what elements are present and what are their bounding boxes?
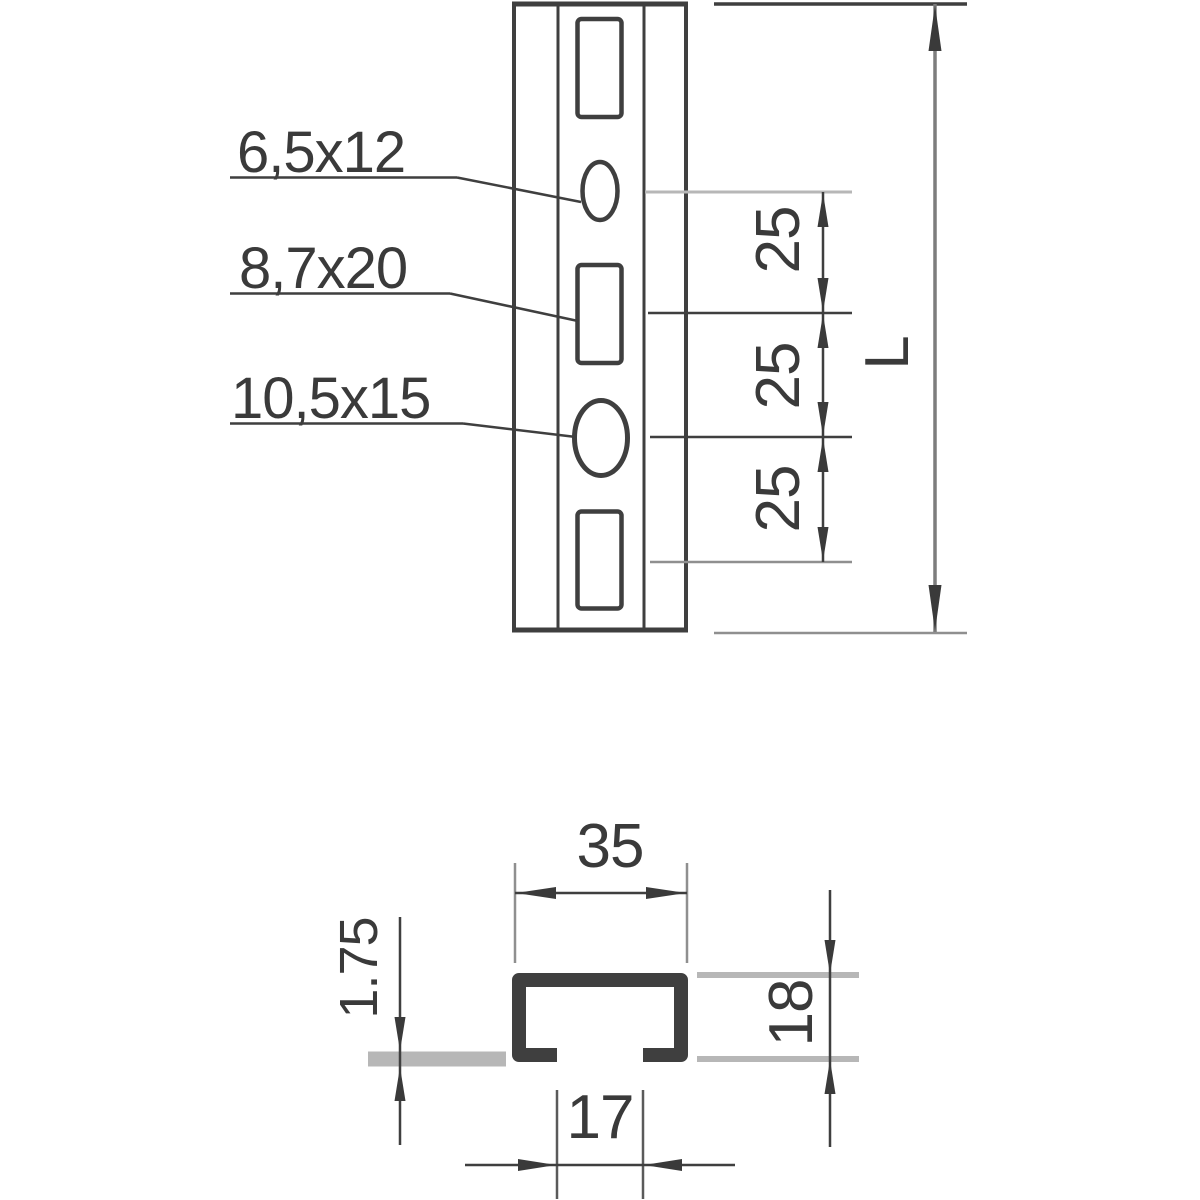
label-oblong-hole: 6,5x12 bbox=[237, 120, 405, 185]
pitch-dimension: 25 25 25 bbox=[744, 192, 829, 562]
arrow-down-icon bbox=[818, 527, 829, 561]
dim-height: 18 bbox=[757, 980, 826, 1047]
arrow-up-icon bbox=[929, 5, 942, 51]
arrow-up-icon bbox=[818, 438, 829, 472]
label-rect-slot: 8,7x20 bbox=[239, 236, 407, 301]
rail-body bbox=[512, 2, 688, 632]
dim-pitch-2: 25 bbox=[744, 343, 813, 410]
dim-pitch-1: 25 bbox=[744, 207, 813, 274]
rect-slot-middle bbox=[578, 265, 622, 363]
dim-width: 35 bbox=[577, 812, 644, 881]
height-dimension: 18 bbox=[757, 890, 836, 1147]
arrow-up-icon bbox=[825, 1060, 836, 1094]
width-dimension: 35 bbox=[515, 812, 687, 963]
oblong-hole bbox=[583, 162, 618, 220]
thickness-dimension: 1.75 bbox=[329, 917, 406, 1145]
hole-labels: 6,5x12 8,7x20 10,5x15 bbox=[230, 120, 581, 437]
arrow-left-icon bbox=[644, 1159, 682, 1171]
round-hole bbox=[575, 401, 628, 476]
front-view: 6,5x12 8,7x20 10,5x15 25 bbox=[230, 2, 967, 633]
dim-length: L bbox=[853, 336, 922, 369]
rect-slot-top bbox=[578, 19, 622, 117]
arrow-down-icon bbox=[825, 940, 836, 974]
dim-thickness: 1.75 bbox=[329, 917, 389, 1018]
arrow-left-icon bbox=[516, 887, 556, 899]
arrow-up-icon bbox=[818, 193, 829, 227]
arrow-right-icon bbox=[518, 1159, 556, 1171]
arrow-down-icon bbox=[818, 278, 829, 312]
arrow-down-icon bbox=[818, 402, 829, 436]
section-view: 35 1.75 18 17 bbox=[329, 812, 859, 1199]
dim-opening: 17 bbox=[567, 1083, 634, 1152]
arrow-right-icon bbox=[646, 887, 686, 899]
channel-rail-technical-drawing: 6,5x12 8,7x20 10,5x15 25 bbox=[0, 0, 1200, 1200]
length-dimension: L bbox=[714, 4, 967, 633]
rect-slot-bottom bbox=[578, 512, 622, 609]
leader-line bbox=[457, 178, 581, 203]
arrow-down-icon bbox=[395, 1017, 406, 1051]
arrow-up-icon bbox=[395, 1067, 406, 1101]
rail-holes bbox=[575, 19, 628, 609]
arrow-down-icon bbox=[929, 585, 942, 631]
c-profile-outline bbox=[519, 980, 681, 1055]
dim-pitch-3: 25 bbox=[744, 466, 813, 533]
arrow-up-icon bbox=[818, 314, 829, 348]
opening-dimension: 17 bbox=[465, 1083, 735, 1199]
label-round-hole: 10,5x15 bbox=[231, 366, 430, 431]
